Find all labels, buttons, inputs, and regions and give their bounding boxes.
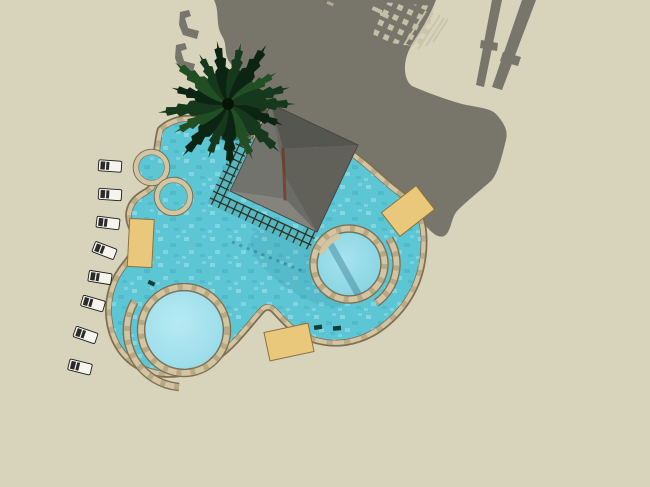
sun-mat-left (127, 218, 154, 267)
lounge-chair (98, 188, 122, 201)
site-plan-canvas (0, 0, 650, 487)
pool-plan-render (0, 0, 650, 487)
palm-trunk-top (222, 98, 234, 110)
lounge-chair (96, 216, 120, 230)
kids-pool-water (146, 292, 223, 369)
pool-light (333, 326, 341, 331)
lounge-chair (98, 160, 122, 173)
